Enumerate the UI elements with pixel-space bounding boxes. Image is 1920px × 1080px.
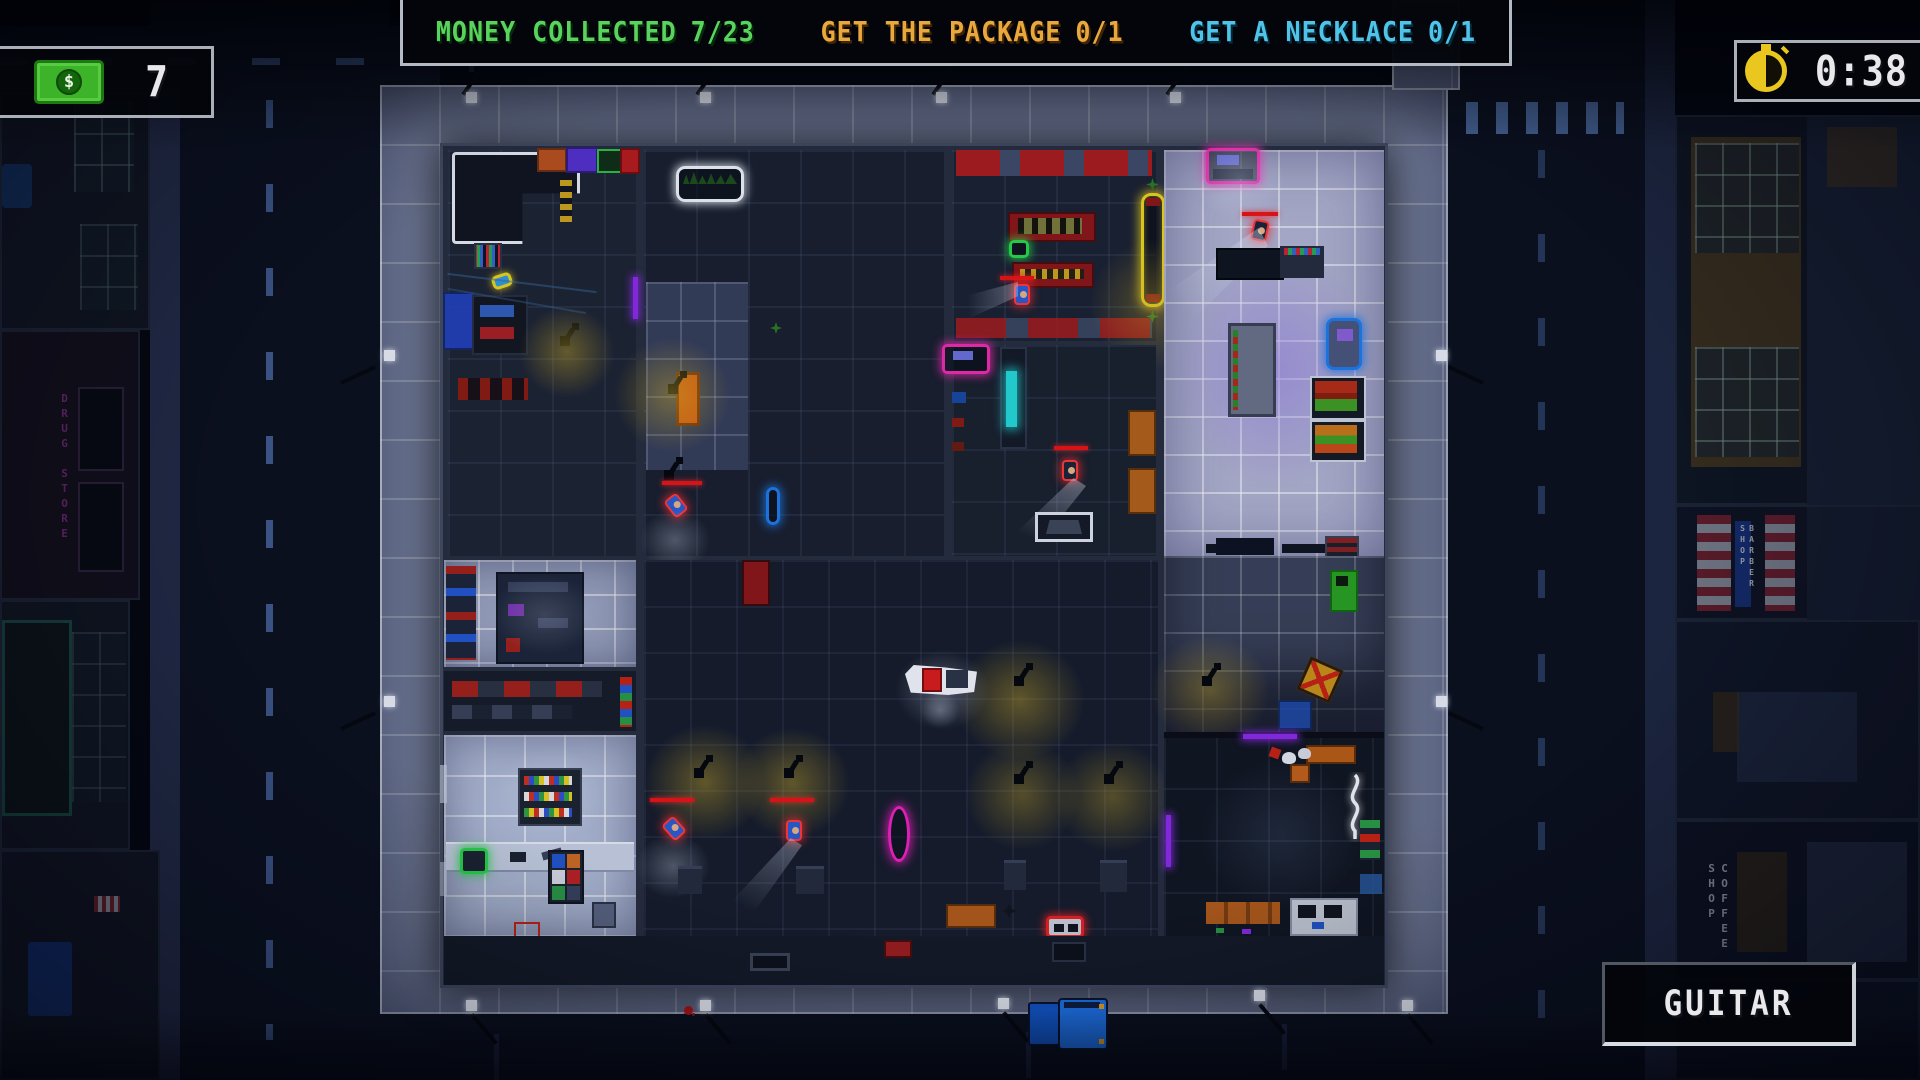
cubby	[567, 886, 580, 900]
guard	[1014, 284, 1030, 305]
neon-vending	[1326, 318, 1362, 370]
coffee-shop-sign: COFFEE SHOP	[1705, 862, 1731, 978]
red-outlined-box	[1046, 916, 1084, 938]
office-machines	[446, 566, 476, 660]
shelf-items	[1284, 248, 1320, 255]
room-mall-floor	[644, 560, 1158, 936]
building-windows	[78, 387, 124, 471]
wall-item	[952, 418, 964, 427]
building-windows	[28, 942, 72, 1016]
timer-value: 0:38	[1815, 47, 1920, 95]
alert-line	[1000, 276, 1034, 280]
planter	[676, 166, 744, 202]
city-building-drugstore: DRUG STORE	[0, 330, 140, 600]
package-shadow	[946, 670, 968, 688]
roof-box	[1713, 692, 1739, 752]
bench	[1100, 860, 1127, 892]
desk-monitors	[538, 618, 568, 628]
car-light	[1099, 1039, 1104, 1044]
desk-item	[1312, 922, 1324, 929]
chair	[506, 638, 520, 652]
service-corridor	[444, 936, 1384, 985]
security-camera	[784, 768, 794, 778]
security-camera	[1014, 676, 1024, 686]
shelf-items	[560, 180, 572, 222]
crate	[566, 147, 598, 173]
barber-awning	[1765, 515, 1795, 611]
objective-label: GET A NECKLACE	[1189, 15, 1414, 47]
stove-machines	[1018, 218, 1082, 234]
neon-register	[942, 344, 990, 374]
city-building-coffee: COFFEE SHOP	[1675, 820, 1920, 980]
cubby	[567, 854, 580, 868]
helmet	[1298, 748, 1311, 759]
objectives-bar: MONEY COLLECTED 7/23 GET THE PACKAGE 0/1…	[400, 0, 1512, 66]
storage-band	[444, 671, 636, 731]
produce	[1315, 381, 1357, 411]
bottles	[524, 792, 572, 801]
display-case	[472, 295, 528, 355]
orange-table	[1128, 468, 1156, 514]
produce-rack	[1310, 376, 1366, 420]
roof-box	[1827, 127, 1897, 187]
security-camera	[694, 768, 704, 778]
timer-panel: 0:38	[1734, 40, 1920, 102]
objective-label: GET THE PACKAGE	[821, 15, 1062, 47]
cabinet	[443, 292, 475, 350]
alert-line	[650, 798, 694, 802]
neon-portal-pink	[888, 806, 910, 862]
roof-box	[1737, 692, 1857, 782]
alert-line	[1054, 446, 1088, 450]
crate	[537, 148, 567, 172]
register-screen	[1217, 155, 1239, 165]
floor-item	[1216, 928, 1224, 933]
crates	[458, 378, 528, 400]
guard-sleeping	[786, 820, 802, 841]
bench	[796, 866, 824, 894]
security-camera	[664, 470, 674, 480]
package-item	[922, 668, 942, 692]
city-building	[0, 600, 130, 850]
shelves	[452, 705, 572, 719]
orange-shelf	[1306, 745, 1356, 764]
objective-label: MONEY COLLECTED	[436, 15, 677, 47]
money-bill-icon: $	[34, 60, 104, 104]
monitor	[1324, 905, 1342, 918]
neon-register	[1206, 148, 1260, 184]
box-slot	[1054, 924, 1064, 932]
monitor	[1298, 905, 1316, 918]
bottles	[524, 776, 572, 785]
door-mark	[1146, 198, 1160, 206]
vending-screen	[1337, 329, 1353, 341]
table	[1216, 538, 1274, 555]
building-windows	[1695, 143, 1799, 253]
red-cabinet	[742, 560, 770, 606]
orange-crate	[946, 904, 996, 928]
desk-top	[1046, 520, 1082, 534]
dark-counter	[1280, 246, 1324, 278]
wall-item	[952, 442, 964, 451]
alert-line	[770, 798, 814, 802]
held-item-label: GUITAR	[1664, 983, 1794, 1023]
kitchen-counters	[956, 318, 1152, 338]
neon-laptop	[460, 848, 488, 874]
counter-item	[510, 852, 526, 862]
stopwatch-icon	[1745, 50, 1787, 92]
display-item	[480, 305, 514, 317]
neon-door-blue	[766, 487, 780, 525]
wall-item	[952, 392, 966, 403]
floor-item	[1242, 929, 1251, 934]
city-building-barber: BARBER SHOP	[1675, 505, 1920, 620]
desk-item	[508, 604, 524, 616]
building-roof	[1807, 507, 1920, 622]
security-camera	[1202, 676, 1212, 686]
city-building	[1675, 115, 1920, 505]
drug-store-sign: DRUG STORE	[58, 392, 71, 542]
display-item	[480, 327, 514, 339]
fridge-items	[1233, 330, 1238, 410]
kitchen-island	[1008, 212, 1096, 242]
desk-computers	[1290, 898, 1358, 936]
building-windows	[78, 482, 124, 572]
register-body	[1213, 169, 1253, 179]
city-building	[1675, 620, 1920, 820]
neon-strip-purple	[1166, 815, 1171, 867]
alert-line	[662, 481, 702, 485]
objective-count: 0/1	[1428, 15, 1476, 47]
room-kitchen	[952, 150, 1156, 341]
lane-dashes	[1538, 150, 1545, 1040]
car-cabin	[1058, 998, 1108, 1050]
barber-shop-sign: BARBER SHOP	[1738, 524, 1756, 607]
bottles	[524, 808, 572, 817]
lane-dashes	[266, 100, 273, 1040]
helmet	[1282, 752, 1296, 764]
cubby	[552, 886, 565, 900]
objective-money: MONEY COLLECTED 7/23	[436, 17, 755, 46]
building-roof	[1807, 842, 1907, 962]
red-shelves	[452, 681, 602, 697]
box-slot	[1068, 924, 1078, 932]
objective-count: 0/1	[1075, 15, 1123, 47]
dark-counter	[1216, 248, 1284, 280]
objective-package: GET THE PACKAGE 0/1	[821, 17, 1124, 46]
register-screen	[953, 351, 973, 360]
neon-door-purple	[633, 277, 638, 319]
security-camera	[1014, 774, 1024, 784]
vending-strip	[620, 677, 632, 727]
right-curb	[1645, 0, 1675, 1080]
orange-crates	[1206, 902, 1280, 924]
car-light	[1099, 1004, 1104, 1009]
guard	[1062, 460, 1078, 481]
objective-necklace: GET A NECKLACE 0/1	[1189, 17, 1476, 46]
bench	[1004, 860, 1026, 890]
crosswalk	[1466, 102, 1624, 134]
objective-count: 7/23	[691, 15, 755, 47]
building-sign	[2, 164, 32, 208]
barber-awning	[1697, 515, 1731, 611]
money-value: 7	[145, 57, 211, 106]
city-building	[0, 92, 150, 330]
fridge-case	[1228, 323, 1276, 417]
wall-shelf	[1360, 820, 1380, 860]
car-windshield	[1064, 1002, 1100, 1008]
building-face	[2, 620, 72, 816]
security-camera	[668, 384, 678, 394]
security-camera	[560, 336, 570, 346]
cubby	[567, 870, 580, 884]
blood-splat	[684, 1006, 693, 1015]
green-vending	[1330, 570, 1358, 612]
kitchen-counters	[956, 150, 1152, 176]
game-viewport[interactable]: DRUG STORE BARBER SHOP COFFEE SHOP	[0, 0, 1920, 1080]
city-building	[0, 850, 160, 1080]
bench	[678, 866, 702, 894]
security-camera	[1104, 774, 1114, 784]
building-windows	[72, 632, 126, 802]
outlined-desk	[1035, 512, 1093, 542]
building-windows	[1695, 347, 1799, 457]
plant-grass	[683, 172, 737, 184]
cubby	[552, 870, 565, 884]
held-item-panel: GUITAR	[1602, 962, 1856, 1046]
display-counter	[1000, 347, 1027, 449]
glowing-display	[1006, 371, 1017, 427]
building-face	[1737, 852, 1787, 952]
alert-line	[1242, 212, 1278, 216]
right-street	[1448, 0, 1675, 1080]
shelf-items	[474, 243, 502, 269]
building-windows	[80, 224, 138, 310]
vending-screen	[1336, 576, 1348, 586]
car-hood	[1028, 1002, 1060, 1046]
orange-box	[1290, 764, 1310, 783]
machine	[592, 902, 616, 928]
orange-table	[1128, 410, 1156, 456]
produce-rack	[1310, 420, 1366, 462]
cubby	[552, 854, 565, 868]
neon-door-yellow	[1141, 193, 1165, 307]
awning	[94, 896, 120, 912]
neon-microwave	[1009, 240, 1029, 258]
neon-strip-purple	[1243, 734, 1297, 739]
desk-monitors	[508, 582, 568, 592]
crate	[620, 148, 640, 174]
wine-rack	[518, 768, 582, 826]
blue-cabinet	[1278, 700, 1312, 730]
barber-sign-board: BARBER SHOP	[1735, 521, 1751, 607]
door-gap	[440, 862, 447, 896]
red-door	[884, 940, 912, 958]
door-gap	[440, 765, 447, 803]
door-mark	[1146, 294, 1160, 302]
door	[1052, 942, 1086, 962]
wall-machine	[1360, 874, 1382, 894]
office-desks	[496, 572, 584, 664]
door	[750, 953, 790, 971]
produce	[1315, 425, 1357, 453]
locker-cubbies	[548, 850, 584, 904]
money-panel: $ 7	[0, 46, 214, 118]
